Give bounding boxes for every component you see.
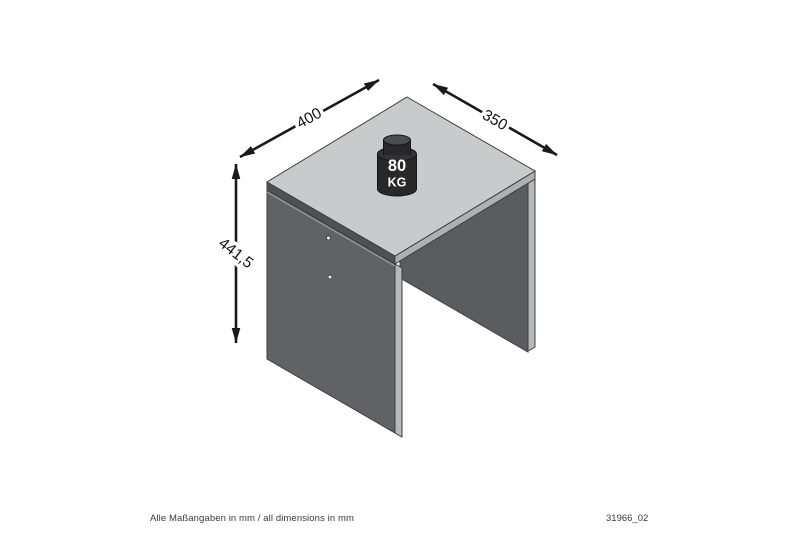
dimension-width-label: 400 (294, 105, 325, 133)
weight-knob-top (384, 135, 411, 145)
screw-hole-marker (328, 275, 332, 279)
footer-note: Alle Maßangaben in mm / all dimensions i… (150, 513, 354, 524)
right-panel-front-edge (528, 179, 535, 351)
weight-unit-label: KG (388, 176, 407, 190)
dimension-depth-label: 350 (479, 107, 510, 135)
screw-hole-marker (327, 236, 331, 240)
technical-drawing-page: 80 KG 400 350 441,5 Alle Maßangaben in m… (0, 0, 800, 533)
left-panel-front-edge (395, 264, 402, 437)
document-number: 31966_02 (606, 513, 648, 524)
weight-capacity-icon: 80 KG (378, 135, 417, 196)
weight-value-label: 80 (388, 157, 406, 175)
stool-dimension-diagram: 80 KG 400 350 441,5 (0, 0, 800, 533)
